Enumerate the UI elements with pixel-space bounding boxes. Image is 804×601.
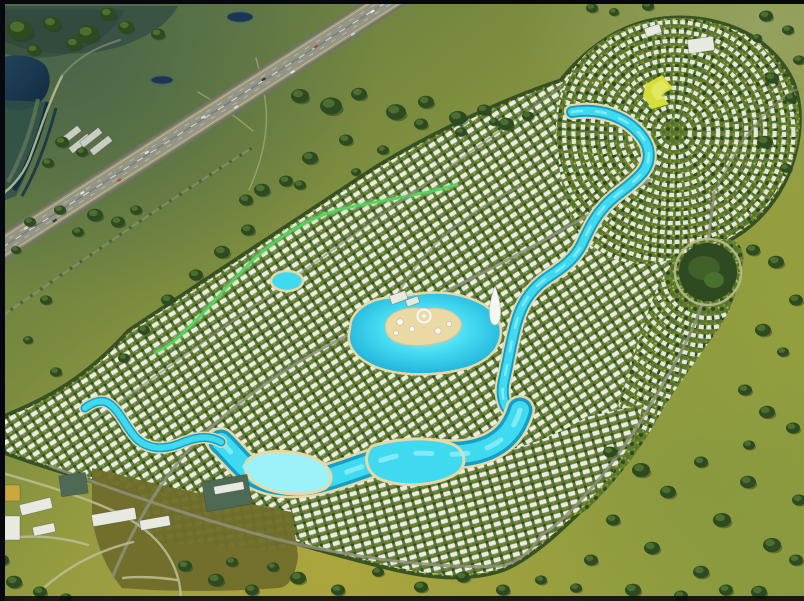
tree-highlight — [794, 495, 802, 501]
tree-highlight — [715, 514, 725, 521]
tree-highlight — [759, 137, 768, 143]
tree-highlight — [479, 105, 487, 111]
roundabout-canopy — [704, 272, 724, 288]
tree-highlight — [216, 247, 225, 253]
aerial-photo-canvas — [0, 0, 804, 601]
tree-highlight — [523, 112, 530, 117]
tree-highlight — [139, 326, 146, 331]
tree-highlight — [451, 112, 461, 119]
tree-highlight — [51, 368, 58, 373]
tree-highlight — [12, 247, 18, 251]
tree-highlight — [610, 9, 616, 13]
tree-highlight — [77, 148, 84, 153]
tree-highlight — [791, 555, 799, 561]
tree-highlight — [68, 39, 77, 45]
tree-highlight — [131, 206, 138, 211]
tree-highlight — [571, 584, 578, 589]
tree-highlight — [55, 206, 62, 211]
tree-highlight — [788, 423, 796, 429]
tree-highlight — [323, 99, 335, 108]
tree-highlight — [8, 577, 17, 583]
tree-highlight — [416, 582, 424, 588]
frame-left — [0, 0, 5, 601]
tree-highlight — [786, 94, 793, 99]
tree-highlight — [373, 568, 380, 573]
tree-highlight — [119, 354, 126, 359]
pond — [151, 76, 173, 84]
frame-bottom — [0, 596, 804, 601]
island-pavilion — [394, 331, 399, 336]
island-pavilion — [409, 326, 415, 332]
tree-highlight — [304, 153, 313, 159]
tree-highlight — [608, 515, 616, 521]
tree-highlight — [241, 195, 249, 201]
tree-highlight — [120, 22, 129, 28]
tree-highlight — [490, 119, 496, 123]
tree-highlight — [783, 26, 790, 31]
tree-highlight — [163, 295, 171, 301]
building — [59, 472, 89, 497]
tree-highlight — [388, 106, 399, 114]
tree-highlight — [420, 97, 429, 103]
tree-highlight — [765, 539, 775, 546]
tree-highlight — [333, 585, 341, 591]
tree-highlight — [696, 457, 704, 463]
tree-highlight — [210, 575, 219, 581]
tree-highlight — [770, 257, 779, 263]
tree-highlight — [587, 4, 594, 9]
tree-highlight — [500, 119, 509, 125]
tree-highlight — [456, 128, 463, 133]
tree-highlight — [268, 563, 275, 568]
tree-highlight — [794, 56, 801, 61]
tree-highlight — [781, 164, 788, 169]
tree-highlight — [721, 585, 729, 591]
island-ring-center — [422, 314, 426, 318]
tree-highlight — [24, 337, 30, 341]
tree-highlight — [627, 585, 636, 591]
tree-highlight — [80, 27, 92, 36]
tree-highlight — [740, 385, 748, 391]
tree-highlight — [247, 585, 255, 591]
tree-highlight — [89, 210, 98, 216]
tree-highlight — [41, 296, 48, 301]
tree-highlight — [10, 22, 24, 32]
tree-highlight — [748, 245, 756, 251]
tree-highlight — [57, 137, 65, 143]
tree-highlight — [227, 558, 234, 563]
tree-highlight — [45, 18, 55, 25]
tree-highlight — [753, 35, 759, 39]
tree-highlight — [43, 159, 50, 164]
building — [5, 485, 20, 501]
tree-highlight — [695, 567, 704, 573]
tree-highlight — [191, 270, 199, 276]
tree-highlight — [73, 228, 80, 233]
small-pond — [271, 271, 303, 291]
tree-highlight — [498, 585, 506, 591]
tree-highlight — [753, 587, 762, 593]
tree-highlight — [292, 573, 301, 579]
tree-highlight — [662, 487, 671, 493]
tree-highlight — [29, 45, 37, 51]
tree-highlight — [778, 348, 785, 353]
aerial-master-plan-render — [0, 0, 804, 601]
tree-highlight — [341, 135, 349, 141]
tree-highlight — [416, 119, 424, 125]
tree-highlight — [605, 447, 613, 453]
tree-highlight — [767, 73, 775, 79]
island-pavilion — [397, 319, 404, 326]
tree-highlight — [295, 181, 302, 186]
tree-highlight — [113, 217, 121, 223]
tree-highlight — [378, 146, 385, 151]
tree-highlight — [757, 325, 766, 331]
pond — [227, 12, 253, 22]
tree-highlight — [634, 464, 644, 471]
tree-highlight — [281, 176, 289, 182]
tree-highlight — [293, 90, 303, 97]
frame-top — [0, 0, 804, 4]
tree-highlight — [25, 218, 32, 223]
island-pavilion — [435, 328, 441, 334]
tree-highlight — [761, 11, 769, 17]
tree-highlight — [586, 555, 594, 561]
tree-highlight — [243, 225, 251, 231]
tree-highlight — [353, 89, 362, 95]
tree-highlight — [153, 29, 161, 35]
tree-highlight — [256, 185, 265, 191]
tree-highlight — [458, 572, 466, 578]
tree-highlight — [352, 169, 358, 173]
tree-highlight — [646, 543, 655, 549]
island-pavilion — [446, 321, 451, 326]
tree-highlight — [35, 587, 43, 593]
tree-highlight — [744, 441, 751, 446]
tree-highlight — [791, 295, 799, 301]
tree-highlight — [761, 407, 770, 413]
tree-highlight — [536, 576, 543, 581]
tree-highlight — [180, 561, 188, 567]
tree-highlight — [102, 9, 111, 15]
tree-highlight — [742, 477, 751, 483]
